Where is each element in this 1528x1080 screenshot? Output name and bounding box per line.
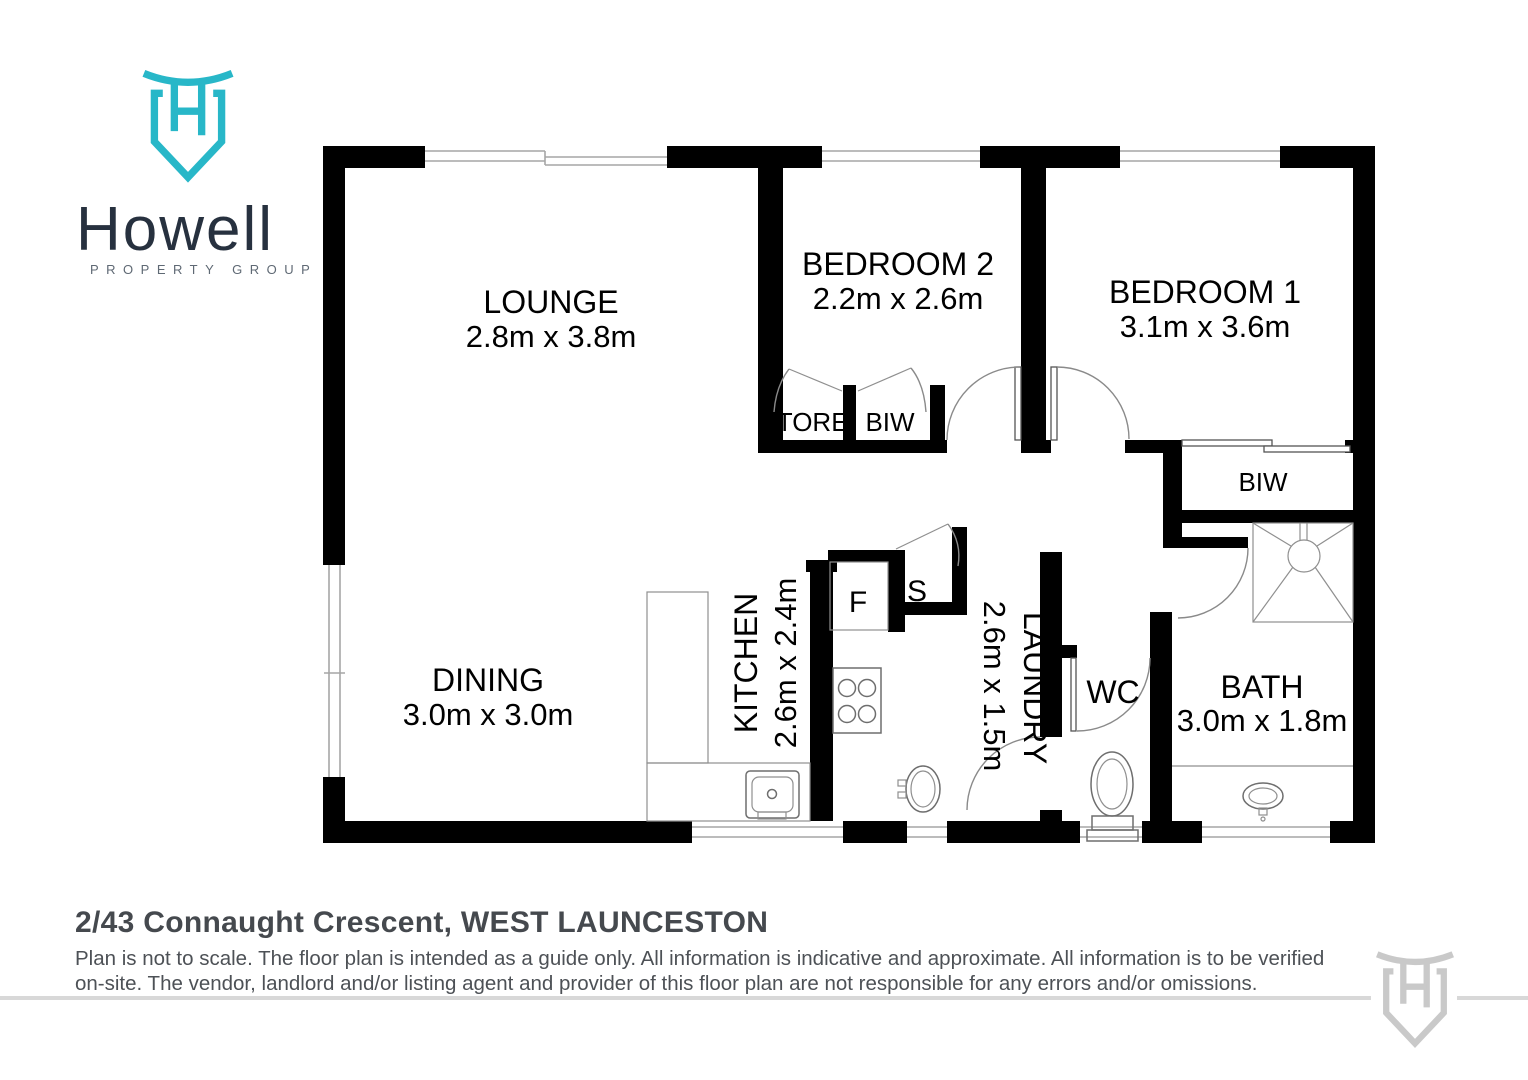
laundry-tub-icon bbox=[898, 766, 940, 812]
footer-divider-left bbox=[0, 996, 1371, 1000]
storage-marker: S bbox=[907, 575, 927, 608]
room-dims-bedroom1: 3.1m x 3.6m bbox=[1120, 309, 1291, 344]
room-dims-bath: 3.0m x 1.8m bbox=[1177, 703, 1348, 738]
room-label-lounge: LOUNGE bbox=[483, 284, 618, 320]
room-label-kitchen: KITCHEN bbox=[728, 593, 764, 733]
closet-label-biw-bed2: BIW bbox=[865, 407, 915, 437]
shower-icon bbox=[1253, 523, 1353, 622]
disclaimer-line-2: on-site. The vendor, landlord and/or lis… bbox=[75, 971, 1324, 996]
closet-label-biw-bed1: BIW bbox=[1238, 467, 1288, 497]
fridge-marker: F bbox=[849, 586, 867, 619]
room-label-laundry: LAUNDRY bbox=[1017, 612, 1053, 764]
room-dims-laundry: 2.6m x 1.5m bbox=[977, 601, 1012, 772]
disclaimer-text: Plan is not to scale. The floor plan is … bbox=[75, 946, 1324, 996]
room-label-bedroom1: BEDROOM 1 bbox=[1109, 274, 1301, 310]
kitchen-sink-icon bbox=[746, 771, 799, 819]
cooktop-icon bbox=[833, 668, 881, 733]
property-address: 2/43 Connaught Crescent, WEST LAUNCESTON bbox=[75, 906, 768, 940]
room-dims-dining: 3.0m x 3.0m bbox=[403, 697, 574, 732]
room-dims-bedroom2: 2.2m x 2.6m bbox=[813, 281, 984, 316]
footer-shield-icon bbox=[1374, 948, 1456, 1056]
closet-label-store: STORE bbox=[759, 407, 848, 437]
disclaimer-line-1: Plan is not to scale. The floor plan is … bbox=[75, 946, 1324, 971]
footer-divider-right bbox=[1457, 996, 1528, 1000]
room-dims-kitchen: 2.6m x 2.4m bbox=[768, 578, 803, 749]
room-label-wc: WC bbox=[1086, 674, 1139, 710]
room-label-bedroom2: BEDROOM 2 bbox=[802, 246, 994, 282]
room-label-bath: BATH bbox=[1221, 669, 1304, 705]
room-dims-lounge: 2.8m x 3.8m bbox=[466, 319, 637, 354]
vanity-basin-icon bbox=[1172, 766, 1353, 821]
room-label-dining: DINING bbox=[432, 662, 544, 698]
